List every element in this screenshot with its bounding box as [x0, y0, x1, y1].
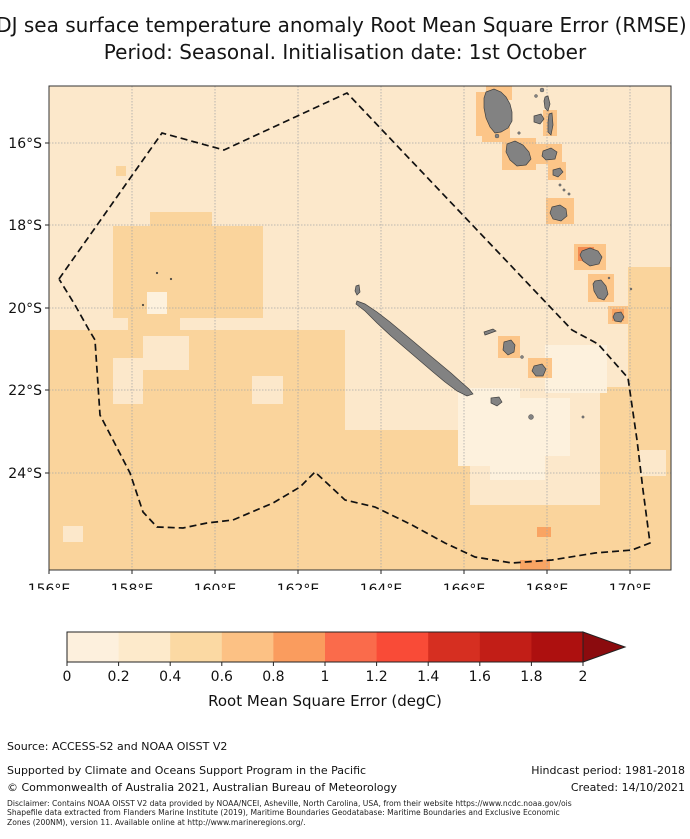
colorbar-segment	[428, 632, 480, 662]
small-island	[568, 193, 570, 195]
colorbar-segment	[377, 632, 429, 662]
colorbar-tick-label: 0	[63, 669, 72, 685]
colorbar: 00.20.40.60.811.21.41.61.82Root Mean Squ…	[0, 620, 690, 720]
data-source-text: Source: ACCESS-S2 and NOAA OISST V2	[7, 740, 227, 753]
map-figure: 156°E158°E160°E162°E164°E166°E168°E170°E…	[0, 80, 690, 590]
colorbar-segment	[222, 632, 274, 662]
small-island	[529, 415, 534, 420]
colorbar-tick-label: 0.8	[262, 669, 284, 685]
figure-subtitle: Period: Seasonal. Initialisation date: 1…	[0, 39, 690, 66]
small-island	[495, 134, 499, 138]
copyright-text: © Commonwealth of Australia 2021, Austra…	[7, 781, 397, 794]
x-tick-label: 160°E	[194, 582, 237, 590]
colorbar-segment	[67, 632, 119, 662]
rmse-patch-dark	[116, 166, 126, 176]
colorbar-tick-label: 2	[579, 669, 588, 685]
colorbar-tick-label: 1.2	[365, 669, 387, 685]
small-island	[521, 356, 524, 359]
x-tick-label: 170°E	[609, 582, 652, 590]
rmse-patch-base	[143, 336, 189, 370]
colorbar-tick-label: 1.4	[417, 669, 439, 685]
rmse-patch-cream	[545, 345, 607, 393]
colorbar-tick-label: 1.8	[520, 669, 542, 685]
created-date-text: Created: 14/10/2021	[571, 781, 685, 794]
disclaimer-block: Disclaimer: Contains NOAA OISST V2 data …	[7, 799, 690, 827]
rmse-patch-dark	[628, 267, 671, 387]
rmse-patch-deep	[537, 527, 551, 537]
colorbar-tick-label: 0.6	[211, 669, 233, 685]
rmse-patch-base	[640, 450, 666, 476]
colorbar-segment	[325, 632, 377, 662]
small-island	[582, 416, 584, 418]
x-tick-label: 166°E	[443, 582, 486, 590]
rmse-patch-cream	[490, 440, 545, 480]
colorbar-tick-label: 1	[321, 669, 330, 685]
rmse-patch-dark	[49, 330, 345, 570]
supported-by-text: Supported by Climate and Oceans Support …	[7, 764, 366, 777]
rmse-patch-dark	[600, 387, 671, 570]
small-island	[630, 288, 632, 290]
rmse-patch-deep	[520, 560, 550, 570]
hindcast-period-text: Hindcast period: 1981-2018	[531, 764, 685, 777]
colorbar-tick-label: 0.2	[107, 669, 129, 685]
rmse-patch-cream	[147, 292, 167, 314]
colorbar-segment	[273, 632, 325, 662]
x-tick-label: 156°E	[28, 582, 71, 590]
rmse-patch-base	[63, 526, 83, 542]
figure-page: { "title": { "line1": "NDJ sea surface t…	[0, 0, 690, 839]
rmse-patch-base	[113, 358, 143, 404]
y-tick-label: 22°S	[8, 383, 42, 399]
colorbar-tick-label: 0.4	[159, 669, 181, 685]
small-island	[535, 95, 538, 98]
colorbar-segment	[480, 632, 532, 662]
disclaimer-line: Shapefile data extracted from Flanders M…	[7, 808, 690, 817]
x-tick-label: 164°E	[360, 582, 403, 590]
small-island	[559, 184, 561, 186]
disclaimer-line: Zones (200NM), version 11. Available onl…	[7, 818, 690, 827]
small-island	[518, 132, 521, 135]
y-tick-label: 16°S	[8, 136, 42, 152]
colorbar-segment	[531, 632, 583, 662]
small-island	[563, 189, 565, 191]
x-tick-label: 168°E	[526, 582, 569, 590]
figure-title-block: NDJ sea surface temperature anomaly Root…	[0, 12, 690, 66]
small-island	[540, 88, 544, 92]
y-tick-label: 20°S	[8, 301, 42, 317]
colorbar-tick-label: 1.6	[469, 669, 491, 685]
colorbar-arrow	[583, 632, 625, 662]
x-tick-label: 158°E	[111, 582, 154, 590]
colorbar-segment	[119, 632, 171, 662]
small-island	[608, 277, 610, 279]
disclaimer-line: Disclaimer: Contains NOAA OISST V2 data …	[7, 799, 690, 808]
rmse-patch-dark	[113, 226, 263, 318]
y-tick-label: 18°S	[8, 218, 42, 234]
figure-title: NDJ sea surface temperature anomaly Root…	[0, 12, 690, 39]
colorbar-axis-label: Root Mean Square Error (degC)	[208, 692, 442, 710]
reef-dot	[142, 304, 144, 306]
x-tick-label: 162°E	[277, 582, 320, 590]
colorbar-segment	[170, 632, 222, 662]
y-tick-label: 24°S	[8, 466, 42, 482]
reef-dot	[156, 272, 158, 274]
reef-dot	[170, 278, 172, 280]
